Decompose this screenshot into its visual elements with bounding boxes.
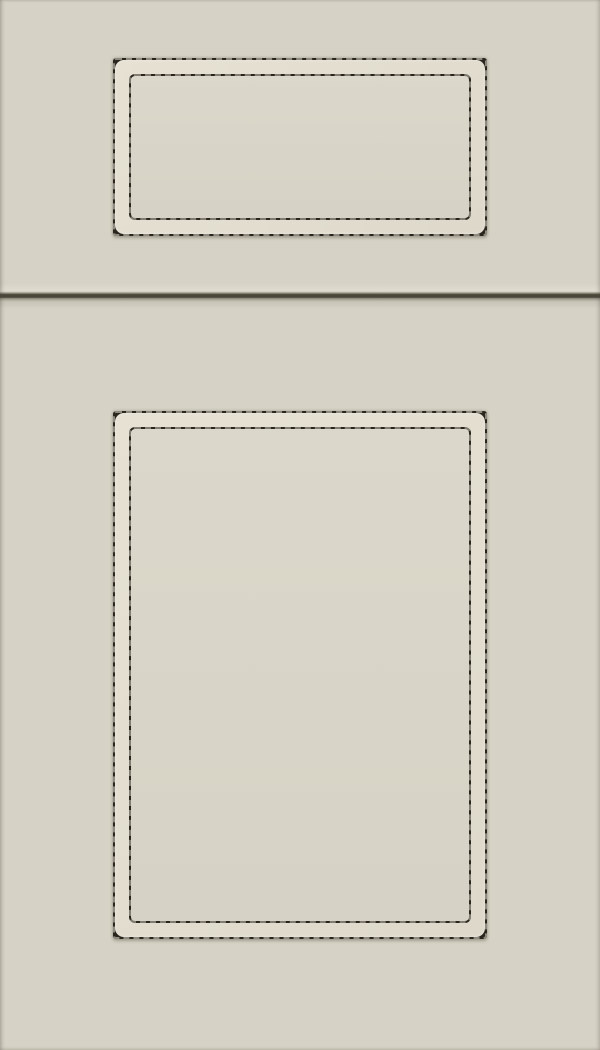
door-center-panel <box>131 429 469 921</box>
door-glaze-frame <box>113 411 487 939</box>
cabinet-sample-photo <box>0 0 600 1050</box>
drawer-glaze-frame <box>113 58 487 236</box>
drawer-center-panel <box>131 76 469 218</box>
rail-divider-line <box>0 283 600 309</box>
